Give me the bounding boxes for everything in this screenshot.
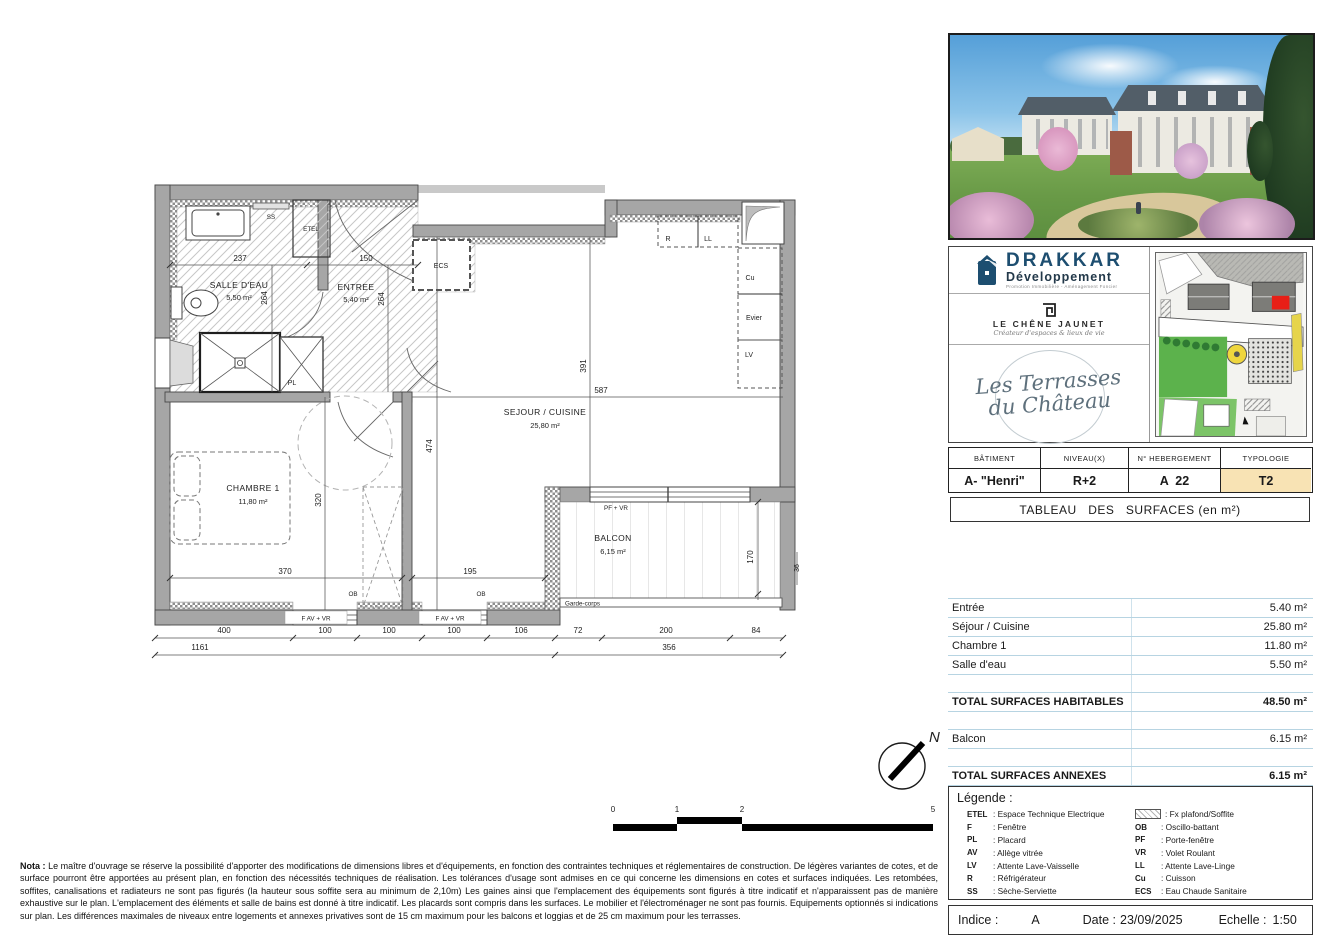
chene-jaunet-tagline: Créateur d'espaces & lieux de vie <box>993 329 1104 337</box>
surface-row-total-habitables: TOTAL SURFACES HABITABLES 48.50 m² <box>948 693 1313 712</box>
toilet-tank <box>171 287 182 319</box>
date-label: Date : <box>1083 913 1116 927</box>
label-pl: PL <box>288 380 297 387</box>
unit-header-hebergement: N° HEBERGEMENT <box>1129 448 1221 469</box>
label-etel: ETEL <box>303 226 319 233</box>
map-lower-path <box>1161 399 1198 436</box>
photo-conifer <box>1247 121 1273 181</box>
svg-text:36: 36 <box>794 564 801 572</box>
surface-row-total-annexes: TOTAL SURFACES ANNEXES 6.15 m² <box>948 767 1313 786</box>
placard <box>280 337 323 392</box>
surface-row-entree: Entrée 5.40 m² <box>948 599 1313 618</box>
surface-row-blank <box>948 675 1313 693</box>
surface-label: Balcon <box>948 733 1131 745</box>
legend-item-r: R: Réfrigérateur <box>967 872 1135 885</box>
surface-row-chambre: Chambre 1 11.80 m² <box>948 637 1313 656</box>
legend-item-lv: LV: Attente Lave-Vaisselle <box>967 859 1135 872</box>
svg-text:400: 400 <box>217 626 231 635</box>
room-sejour-area: 25,80 m² <box>530 421 560 430</box>
svg-text:0: 0 <box>611 805 616 814</box>
title-block-footer: Indice : A Date : 23/09/2025 Echelle : 1… <box>948 905 1313 935</box>
surface-row-blank <box>948 749 1313 767</box>
surface-label: Séjour / Cuisine <box>948 621 1131 633</box>
svg-text:356: 356 <box>662 643 676 652</box>
unit-header-batiment: BÂTIMENT <box>949 448 1041 469</box>
surface-total-label: TOTAL SURFACES HABITABLES <box>948 696 1131 708</box>
map-yellow-path <box>1291 313 1303 371</box>
unit-value-hebergement: A 22 <box>1129 469 1221 492</box>
svg-text:170: 170 <box>746 550 755 564</box>
legend-item-pf: PF: Porte-fenêtre <box>1135 834 1304 847</box>
label-ss: SS <box>267 214 275 221</box>
label-ob-2: OB <box>476 591 485 598</box>
photo-blossom-tree <box>1174 143 1208 179</box>
soffit-hatch-swatch <box>1135 809 1161 819</box>
legend-item-ecs: ECS: Eau Chaude Sanitaire <box>1135 885 1304 898</box>
legend-item-pl: PL: Placard <box>967 834 1135 847</box>
legend-item-ll: LL: Attente Lave-Linge <box>1135 859 1304 872</box>
map-unit-marker <box>1272 296 1290 310</box>
bed <box>170 452 290 544</box>
label-r: R <box>665 236 670 243</box>
unit-value-niveau: R+2 <box>1041 469 1129 492</box>
legend-title: Légende : <box>957 791 1304 805</box>
room-balcon-name: BALCON <box>594 533 631 543</box>
legend-item-etel: ETEL: Espace Technique Electrique <box>967 808 1135 821</box>
svg-text:195: 195 <box>463 567 477 576</box>
legend-item-vr: VR: Volet Roulant <box>1135 846 1304 859</box>
surface-row-blank <box>948 712 1313 730</box>
balcony-window <box>590 487 750 502</box>
north-arrow-icon: N <box>879 729 940 789</box>
legend-item-ss: SS: Sèche-Serviette <box>967 885 1135 898</box>
svg-text:106: 106 <box>514 626 528 635</box>
drakkar-name: DRAKKAR <box>1006 251 1123 270</box>
surface-total-label: TOTAL SURFACES ANNEXES <box>948 770 1131 782</box>
svg-text:84: 84 <box>752 626 761 635</box>
surface-value: 6.15 m² <box>1131 730 1314 748</box>
map-building-c <box>1204 405 1229 426</box>
unit-header-niveau: NIVEAU(X) <box>1041 448 1129 469</box>
surface-total-value: 6.15 m² <box>1131 767 1314 785</box>
svg-text:1: 1 <box>675 805 680 814</box>
floor-plan-drawing: SALLE D'EAU 5,50 m² ENTREE 5,40 m² SEJOU… <box>0 0 940 850</box>
surface-value: 5.40 m² <box>1131 599 1314 617</box>
label-ll: LL <box>704 236 712 243</box>
towel-dryer <box>253 203 289 209</box>
surface-total-value: 48.50 m² <box>1131 693 1314 711</box>
photo-roof-dormers <box>1126 91 1260 105</box>
photo-cloud <box>1040 43 1180 89</box>
room-sejour-name: SEJOUR / CUISINE <box>504 407 586 417</box>
indice-label: Indice : <box>958 913 998 927</box>
turning-circle <box>298 396 392 490</box>
svg-text:391: 391 <box>579 359 588 373</box>
nota-title: Nota : <box>20 861 46 871</box>
room-chambre-area: 11,80 m² <box>238 497 268 506</box>
brand-panel: DRAKKAR Développement Promotion Immobili… <box>948 246 1313 443</box>
svg-text:2: 2 <box>740 805 745 814</box>
legend-item-f: F: Fenêtre <box>967 821 1135 834</box>
surface-label: Chambre 1 <box>948 640 1131 652</box>
room-salledeau-name: SALLE D'EAU <box>210 280 268 290</box>
label-ob-1: OB <box>348 591 357 598</box>
svg-text:72: 72 <box>574 626 583 635</box>
svg-text:5: 5 <box>931 805 936 814</box>
drakkar-house-icon <box>975 254 999 286</box>
chene-jaunet-icon <box>1041 302 1057 318</box>
svg-text:264: 264 <box>260 291 269 305</box>
svg-text:100: 100 <box>447 626 461 635</box>
photo-roof-left <box>1018 97 1116 115</box>
room-chambre-name: CHAMBRE 1 <box>226 483 279 493</box>
label-ecs: ECS <box>434 263 449 270</box>
svg-text:1161: 1161 <box>191 643 209 652</box>
svg-text:100: 100 <box>318 626 332 635</box>
date-value: 23/09/2025 <box>1120 913 1183 927</box>
chene-jaunet-name: LE CHÊNE JAUNET <box>993 319 1105 329</box>
label-cu: Cu <box>746 275 755 282</box>
surface-label: Salle d'eau <box>948 659 1131 671</box>
site-map-cell <box>1150 247 1312 442</box>
drakkar-logo: DRAKKAR Développement Promotion Immobili… <box>949 247 1149 294</box>
unit-value-batiment: A- "Henri" <box>949 469 1041 492</box>
label-pf-vr: PF + VR <box>604 505 628 512</box>
scale-bar: 0 1 2 5 <box>611 805 936 831</box>
svg-text:200: 200 <box>659 626 673 635</box>
shower <box>200 333 280 392</box>
map-planted-zone <box>1249 339 1292 384</box>
development-photo <box>948 33 1315 240</box>
room-balcon-area: 6,15 m² <box>600 547 626 556</box>
svg-text:474: 474 <box>425 439 434 453</box>
label-lv: LV <box>745 352 753 359</box>
site-plan-map <box>1155 252 1307 437</box>
svg-text:150: 150 <box>359 254 373 263</box>
window-salledeau <box>155 338 170 388</box>
photo-brick-wing <box>1110 131 1132 175</box>
surface-value: 11.80 m² <box>1131 637 1314 655</box>
svg-text:100: 100 <box>382 626 396 635</box>
svg-text:264: 264 <box>377 292 386 306</box>
photo-person <box>1136 202 1141 214</box>
surface-row-sejour: Séjour / Cuisine 25.80 m² <box>948 618 1313 637</box>
surface-row-salledeau: Salle d'eau 5.50 m² <box>948 656 1313 675</box>
surfaces-table: Entrée 5.40 m² Séjour / Cuisine 25.80 m²… <box>948 598 1313 786</box>
photo-blossom-tree <box>1038 127 1078 171</box>
room-entree-area: 5,40 m² <box>343 295 369 304</box>
drakkar-tagline: Promotion Immobilière - Aménagement Fonc… <box>1006 284 1123 289</box>
map-building-d <box>1256 417 1285 436</box>
chene-jaunet-logo: LE CHÊNE JAUNET Créateur d'espaces & lie… <box>949 294 1149 345</box>
wardrobe-optional <box>363 487 403 607</box>
room-salledeau-area: 5,50 m² <box>226 293 252 302</box>
surface-value: 5.50 m² <box>1131 656 1314 674</box>
label-f-av-vr-1: F AV + VR <box>301 616 331 623</box>
svg-text:370: 370 <box>278 567 292 576</box>
legend-item-cu: Cu: Cuisson <box>1135 872 1304 885</box>
room-entree-name: ENTREE <box>338 282 375 292</box>
terrasses-logo: Les Terrasses du Château <box>949 345 1149 442</box>
legend-item-av: AV: Allège vitrée <box>967 846 1135 859</box>
unit-value-typologie: T2 <box>1221 469 1311 492</box>
svg-text:587: 587 <box>594 386 608 395</box>
legend-item-soffite: : Fx plafond/Soffite <box>1135 808 1304 821</box>
unit-info-table: BÂTIMENT NIVEAU(X) N° HEBERGEMENT TYPOLO… <box>948 447 1313 493</box>
tableau-surfaces-title: TABLEAU DES SURFACES (en m²) <box>950 497 1310 522</box>
echelle-label: Echelle : <box>1219 913 1267 927</box>
nota-paragraph: Nota : Le maître d'ouvrage se réserve la… <box>20 860 938 922</box>
brand-logos-column: DRAKKAR Développement Promotion Immobili… <box>949 247 1150 442</box>
surface-value: 25.80 m² <box>1131 618 1314 636</box>
legend-right-column: : Fx plafond/Soffite OB: Oscillo-battant… <box>1135 808 1304 898</box>
nota-body: Le maître d'ouvrage se réserve la possib… <box>20 861 938 921</box>
legend-item-ob: OB: Oscillo-battant <box>1135 821 1304 834</box>
drakkar-sub: Développement <box>1006 270 1123 284</box>
unit-header-typologie: TYPOLOGIE <box>1221 448 1311 469</box>
map-hatch-strip <box>1245 399 1270 411</box>
svg-text:N: N <box>929 729 940 746</box>
echelle-value: 1:50 <box>1273 913 1297 927</box>
svg-text:237: 237 <box>233 254 247 263</box>
legend-box: Légende : ETEL: Espace Technique Electri… <box>948 786 1313 900</box>
label-f-av-vr-2: F AV + VR <box>435 616 465 623</box>
indice-value: A <box>1031 913 1039 927</box>
surface-row-balcon: Balcon 6.15 m² <box>948 730 1313 749</box>
balcony <box>560 487 782 607</box>
surface-label: Entrée <box>948 602 1131 614</box>
legend-left-column: ETEL: Espace Technique Electrique F: Fen… <box>957 808 1135 898</box>
label-garde-corps: Garde-corps <box>565 601 600 608</box>
svg-text:320: 320 <box>314 493 323 507</box>
label-evier: Evier <box>746 315 763 322</box>
